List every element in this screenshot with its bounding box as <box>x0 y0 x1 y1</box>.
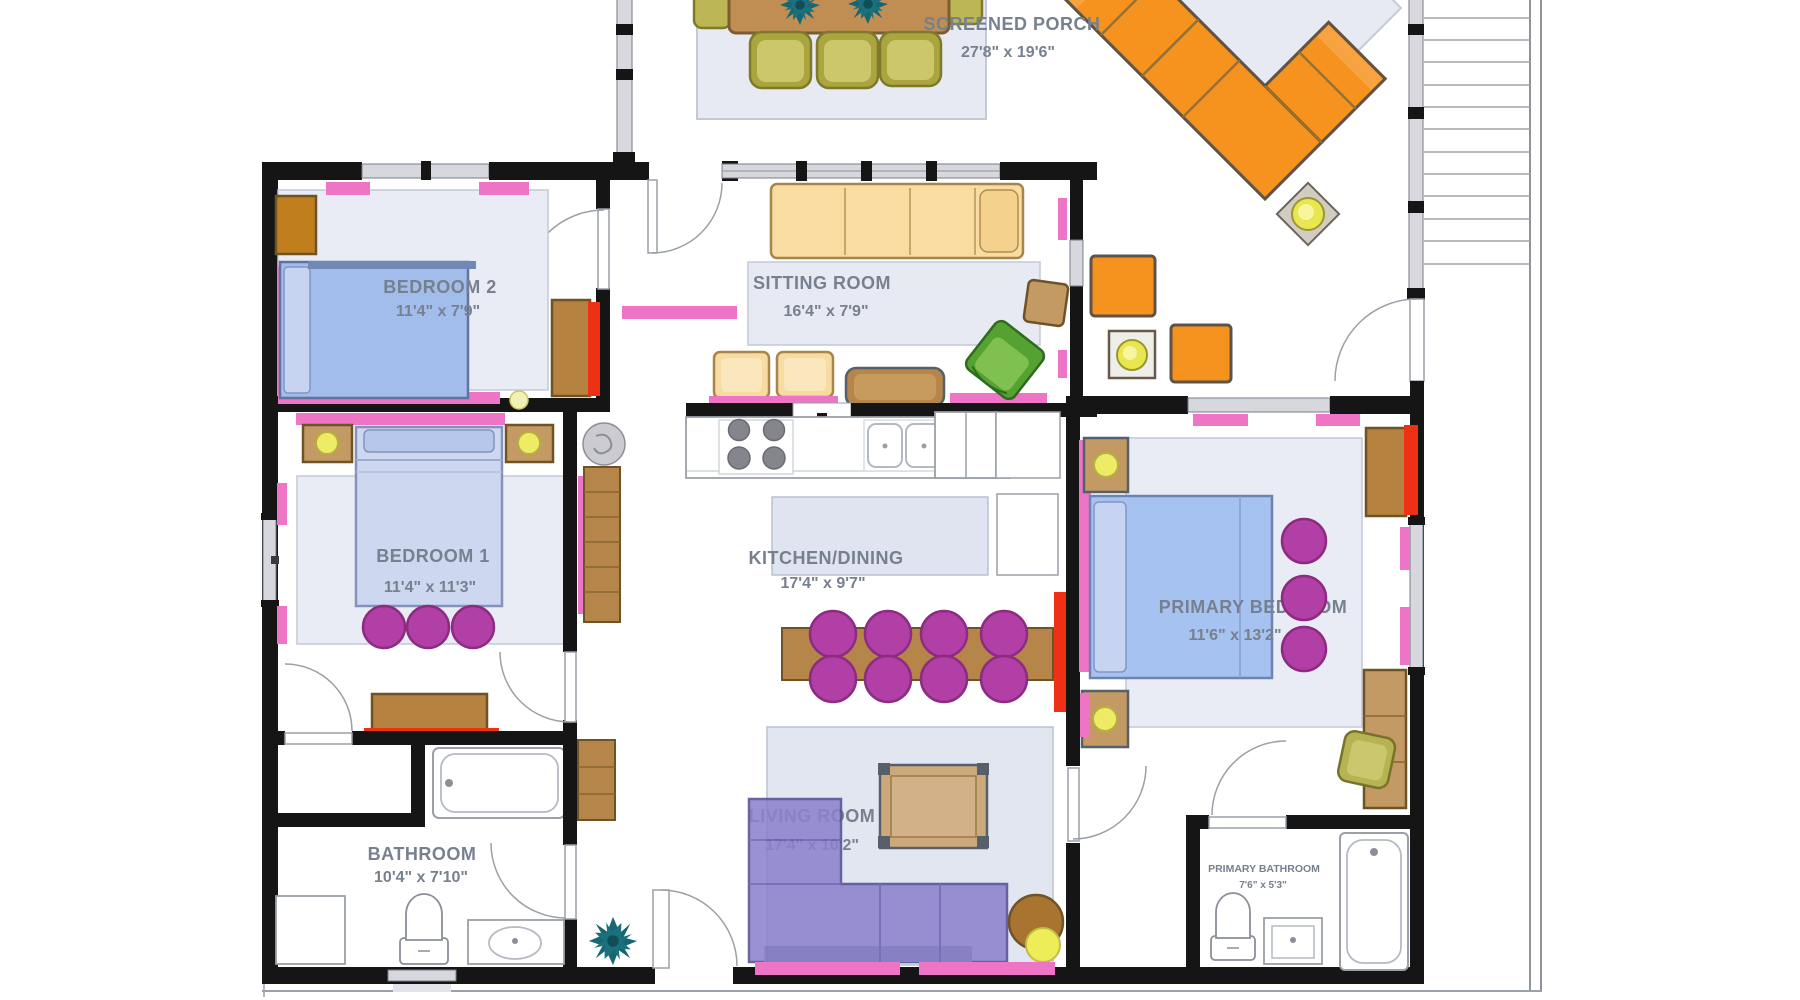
svg-text:17'4" x 9'7": 17'4" x 9'7" <box>780 575 865 592</box>
svg-text:7'6" x 5'3": 7'6" x 5'3" <box>1239 880 1287 891</box>
svg-text:10'4" x 7'10": 10'4" x 7'10" <box>374 869 468 886</box>
svg-text:PRIMARY BATHROOM: PRIMARY BATHROOM <box>1208 863 1320 875</box>
svg-text:BEDROOM 2: BEDROOM 2 <box>383 277 497 297</box>
svg-text:11'4" x 11'3": 11'4" x 11'3" <box>384 579 476 596</box>
svg-text:BEDROOM 1: BEDROOM 1 <box>376 546 490 566</box>
svg-text:27'8" x 19'6": 27'8" x 19'6" <box>961 44 1055 61</box>
svg-text:11'4" x 7'9": 11'4" x 7'9" <box>396 303 480 320</box>
svg-text:SITTING ROOM: SITTING ROOM <box>753 273 891 293</box>
svg-text:SCREENED PORCH: SCREENED PORCH <box>923 14 1100 34</box>
svg-text:KITCHEN/DINING: KITCHEN/DINING <box>749 548 904 568</box>
svg-text:11'6" x 13'2": 11'6" x 13'2" <box>1188 627 1281 644</box>
svg-text:BATHROOM: BATHROOM <box>368 844 477 864</box>
svg-text:16'4" x 7'9": 16'4" x 7'9" <box>783 303 868 320</box>
